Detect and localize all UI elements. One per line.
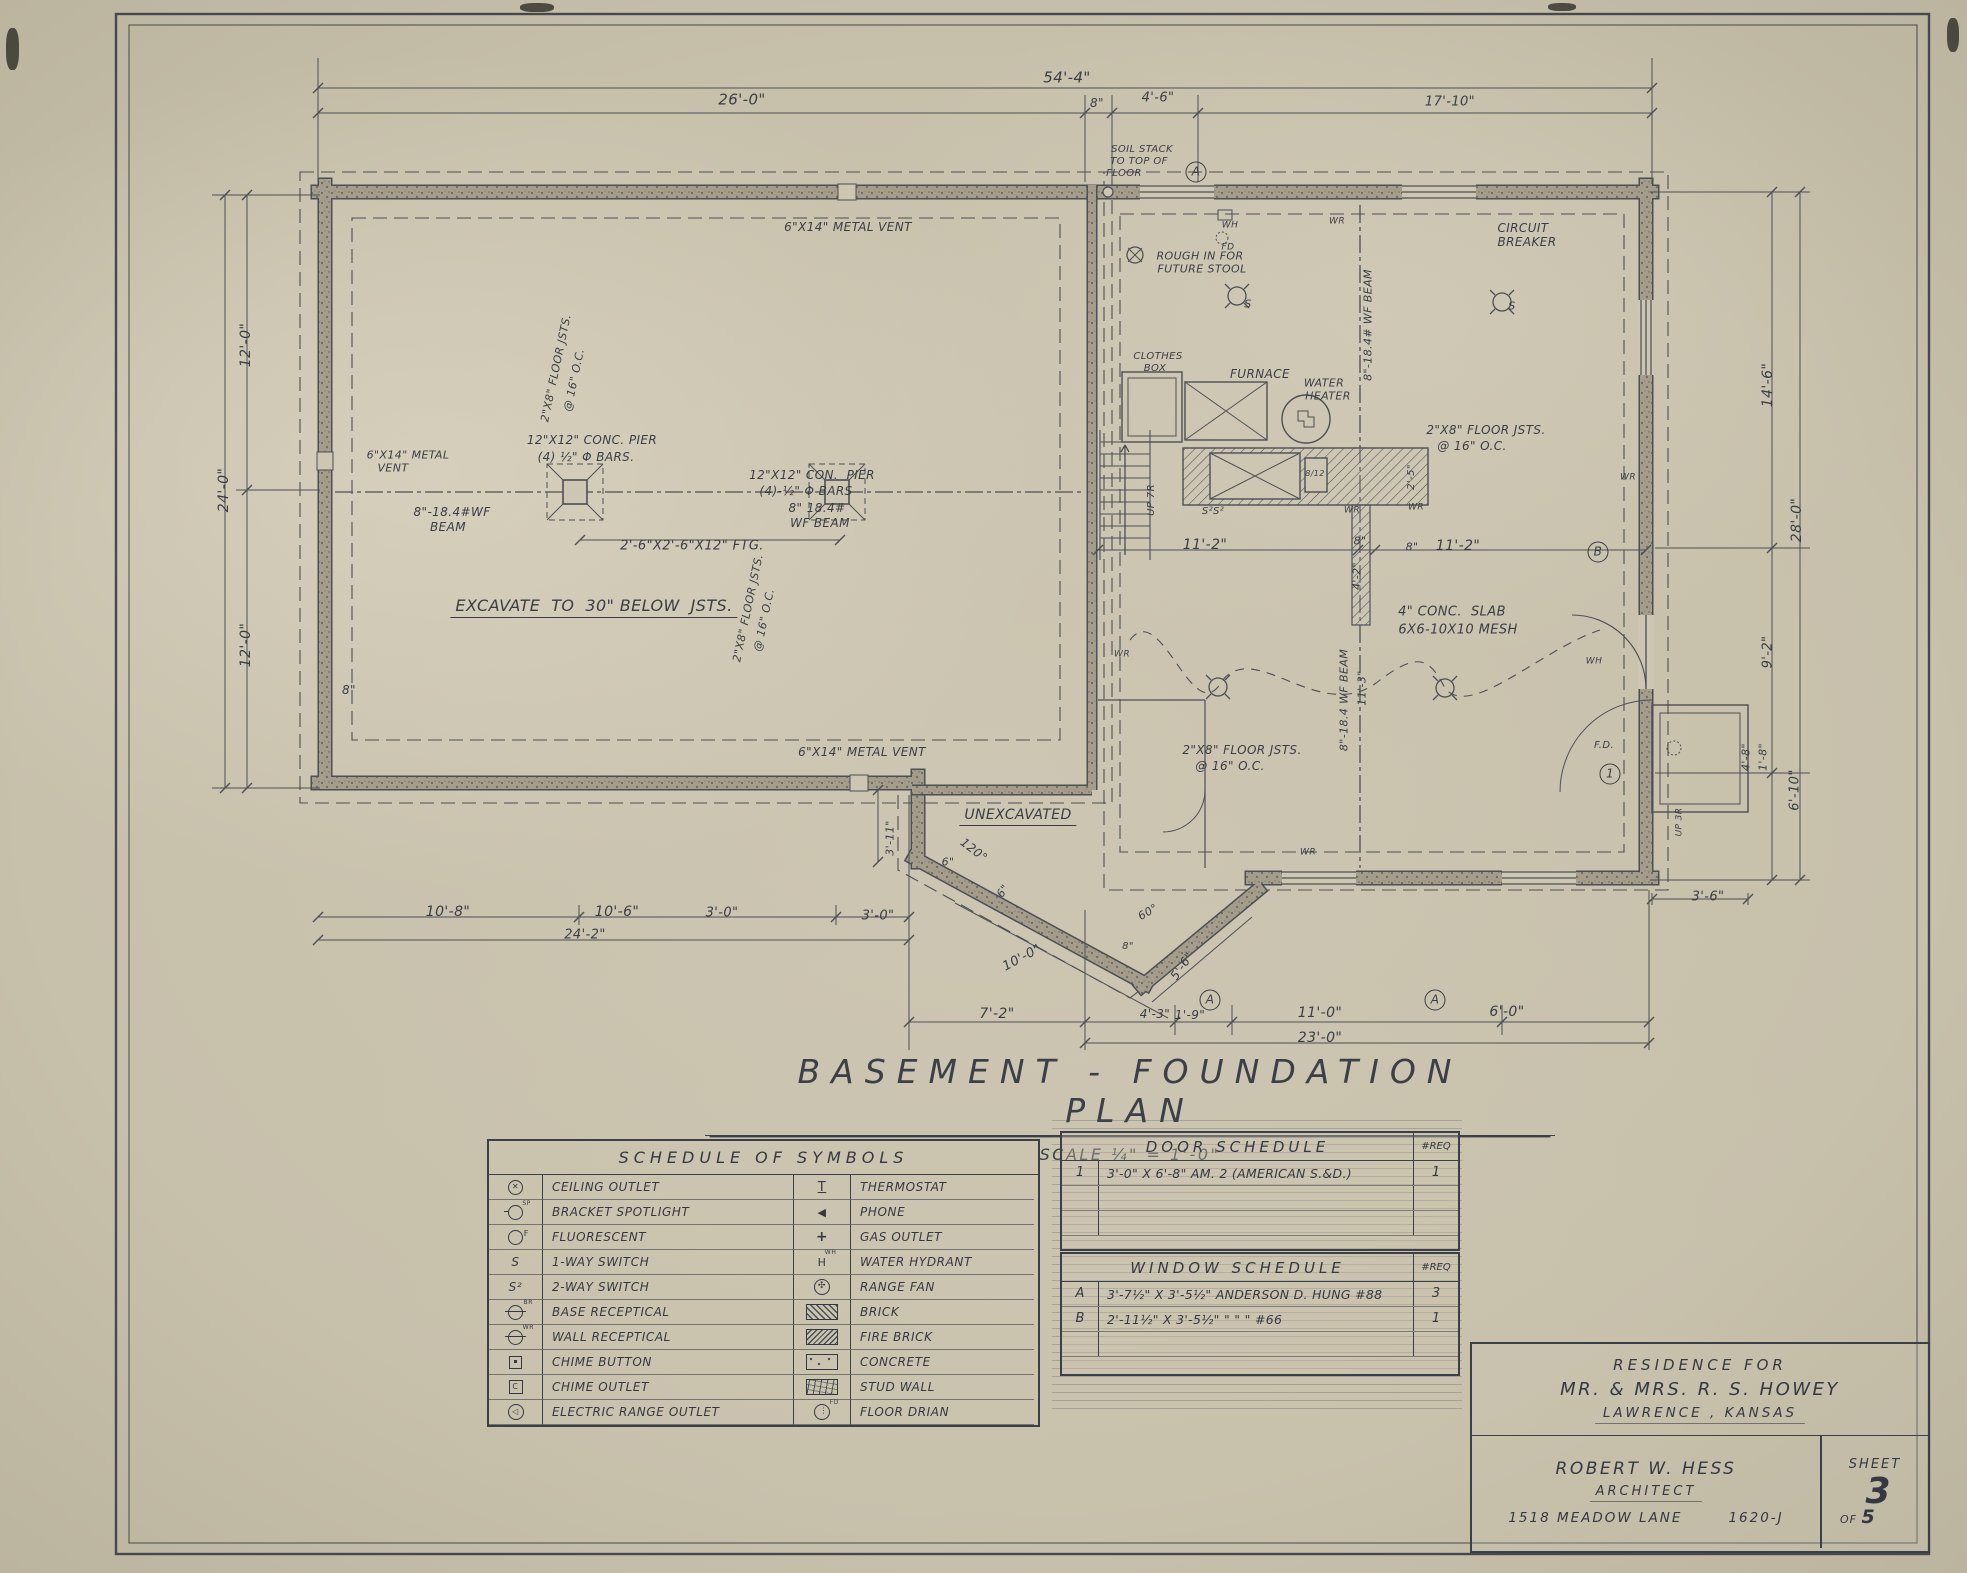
plan-annotation: 6" (942, 857, 955, 868)
schedule-cell-desc: 3'-0" X 6'-8" AM. 2 (AMERICAN S.&D.) (1099, 1166, 1413, 1181)
plan-annotation: 2'-6"X2'-6"X12" FTG. (620, 540, 764, 553)
base-receptacle-icon (489, 1300, 543, 1325)
window-schedule-title: WINDOW SCHEDULE (1062, 1259, 1413, 1277)
water-hydrant-icon (793, 1250, 851, 1275)
symbol-label: WALL RECEPTICAL (543, 1325, 793, 1350)
plan-annotation: WR (1408, 504, 1424, 513)
plan-annotation: 12"X12" CONC. PIER (527, 434, 657, 446)
chime-outlet-icon (489, 1375, 543, 1400)
plan-annotation: 24'-0" (217, 468, 231, 512)
gas-outlet-icon (793, 1225, 851, 1250)
concrete-icon (793, 1350, 851, 1375)
plan-annotation: A (1186, 162, 1207, 183)
thermostat-glyph (818, 1180, 827, 1195)
plan-annotation: 8" (1406, 542, 1419, 553)
title-block: RESIDENCE FOR MR. & MRS. R. S. HOWEY LAW… (1470, 1342, 1930, 1553)
schedule-empty-row (1062, 1186, 1458, 1211)
floor-drain-glyph (814, 1404, 830, 1420)
brick-icon (793, 1300, 851, 1325)
bracket-spotlight-glyph (508, 1205, 523, 1220)
schedule-row: A3'-7½" X 3'-5½" ANDERSON D. HUNG #883 (1062, 1282, 1458, 1307)
phone-icon (793, 1200, 851, 1225)
plan-annotation: 8" (342, 684, 356, 696)
ceiling-outlet-glyph (508, 1180, 523, 1195)
plan-annotation: 6"X14" METAL VENT (784, 221, 912, 233)
schedule-cell-mark: 1 (1062, 1161, 1099, 1185)
symbol-label: BASE RECEPTICAL (543, 1300, 793, 1325)
plan-annotation: @ 16" O.C. (1195, 760, 1264, 772)
plan-annotation: 11'-2" (1183, 538, 1227, 552)
plan-annotation: (4) ½" Φ BARS. (538, 451, 635, 463)
project-location: LAWRENCE , KANSAS (1595, 1405, 1805, 1424)
plan-annotation: 4'-8" (1741, 743, 1752, 771)
window-schedule-body: A3'-7½" X 3'-5½" ANDERSON D. HUNG #883B2… (1062, 1282, 1458, 1357)
plan-annotation: 4'-3" (1140, 1008, 1170, 1020)
plan-annotation: 11'-0" (1298, 1006, 1342, 1020)
plan-annotation: UP 3R (1676, 808, 1685, 837)
chime-button-icon (489, 1350, 543, 1375)
plan-annotation: BREAKER (1498, 236, 1557, 248)
door-schedule: DOOR SCHEDULE #REQ 13'-0" X 6'-8" AM. 2 … (1060, 1131, 1460, 1251)
schedule-row: 13'-0" X 6'-8" AM. 2 (AMERICAN S.&D.)1 (1062, 1161, 1458, 1186)
electric-range-outlet-icon (489, 1400, 543, 1425)
schedule-cell-desc: 3'-7½" X 3'-5½" ANDERSON D. HUNG #88 (1099, 1287, 1413, 1302)
two-way-switch-icon (489, 1275, 543, 1300)
one-way-switch-icon (489, 1250, 543, 1275)
plan-annotation: WH (1586, 658, 1602, 667)
wall-receptacle-icon (489, 1325, 543, 1350)
plan-annotation: 23'-0" (1298, 1031, 1342, 1045)
symbol-label: RANGE FAN (851, 1275, 1034, 1300)
plan-annotation: @ 16" O.C. (1437, 440, 1506, 452)
client-name: MR. & MRS. R. S. HOWEY (1560, 1379, 1840, 1400)
blueprint-sheet: 54'-4"26'-0"8"4'-6"17'-10"SOIL STACKTO T… (0, 0, 1967, 1573)
plan-annotation: 3'-0" (862, 910, 895, 923)
plan-annotation: 12"X12" CON. PIER (749, 469, 875, 481)
plan-annotation: 26'-0" (718, 93, 765, 108)
floor-drain-icon (793, 1400, 851, 1425)
plan-annotation: 11'-2" (1436, 539, 1480, 553)
sheet-total: 5 (1862, 1506, 1876, 1528)
symbol-label: FIRE BRICK (851, 1325, 1034, 1350)
plan-annotation: WR (1329, 218, 1345, 227)
plan-annotation: WF BEAM (790, 517, 850, 529)
plan-annotation: 3'-6" (1692, 891, 1725, 904)
plan-annotation: 6"X14" METAL VENT (798, 746, 926, 758)
plan-annotation: 8" (1090, 97, 1104, 109)
plan-annotation: 8/12 (1305, 470, 1325, 478)
sheet-number-box: SHEET 3 OF 5 (1820, 1436, 1928, 1548)
plan-annotation: 11'-3" (1357, 670, 1368, 705)
range-fan-icon (793, 1275, 851, 1300)
plan-annotation: 28'-0" (1790, 498, 1804, 542)
plan-annotation: 8"-18.4 WF BEAM (1339, 649, 1350, 751)
plan-annotation: 6"X14" METAL (367, 450, 450, 461)
symbol-label: ELECTRIC RANGE OUTLET (543, 1400, 793, 1425)
plan-annotation: 6X6-10X10 MESH (1398, 624, 1517, 637)
phone-glyph (817, 1205, 826, 1219)
plan-annotation: S²S² (1202, 507, 1224, 517)
symbol-label: CHIME OUTLET (543, 1375, 793, 1400)
symbol-label: BRACKET SPOTLIGHT (543, 1200, 793, 1225)
range-fan-glyph (814, 1279, 830, 1295)
plan-annotation: 8"-18.4# WF BEAM (1363, 269, 1374, 381)
schedule-cell-mark: B (1062, 1307, 1099, 1331)
symbol-schedule-title: SCHEDULE OF SYMBOLS (489, 1141, 1038, 1175)
symbol-label: CONCRETE (851, 1350, 1034, 1375)
plan-annotation: 10'-6" (595, 905, 639, 919)
plan-annotation: S (1508, 301, 1515, 312)
symbol-label: PHONE (851, 1200, 1034, 1225)
plan-annotation: 1'-9" (1175, 1009, 1205, 1021)
plan-annotation: 7'-2" (979, 1007, 1014, 1021)
plan-annotation: 54'-4" (1043, 71, 1090, 86)
door-schedule-body: 13'-0" X 6'-8" AM. 2 (AMERICAN S.&D.)1 (1062, 1161, 1458, 1236)
plan-annotation: FUTURE STOOL (1157, 264, 1246, 275)
schedule-cell-req: 1 (1413, 1161, 1458, 1185)
sheet-number: 3 (1865, 1474, 1890, 1510)
electric-range-outlet-glyph (508, 1404, 524, 1420)
stud-wall-icon (793, 1375, 851, 1400)
plan-annotation: WR (1344, 507, 1360, 516)
architect-address: 1518 MEADOW LANE (1508, 1510, 1682, 1526)
plan-annotation: WR (1620, 474, 1636, 483)
plan-annotation: BEAM (430, 521, 466, 533)
symbol-label: WATER HYDRANT (851, 1250, 1034, 1275)
plan-annotation: F.D. (1594, 741, 1614, 751)
schedule-cell-req: 1 (1413, 1307, 1458, 1331)
plan-annotation: WATER (1304, 378, 1344, 389)
plan-annotation: UP 7R (1147, 484, 1157, 516)
plan-annotation: SOIL STACK (1111, 145, 1173, 155)
sheet-label: SHEET (1849, 1457, 1901, 1472)
plan-annotation: B (1588, 542, 1609, 563)
two-way-switch-glyph (509, 1280, 523, 1294)
plan-annotation: WR (1114, 651, 1130, 660)
sheet-of-label: OF (1840, 1513, 1857, 1526)
symbol-label: GAS OUTLET (851, 1225, 1034, 1250)
symbol-label: BRICK (851, 1300, 1034, 1325)
symbol-label: CHIME BUTTON (543, 1350, 793, 1375)
plan-annotation: FURNACE (1230, 368, 1290, 380)
plan-annotation: VENT (377, 463, 408, 474)
plan-annotation: CIRCUIT (1497, 222, 1548, 234)
ceiling-outlet-icon (489, 1175, 543, 1200)
plan-annotation: WH (1222, 222, 1238, 231)
plan-annotation: 1 (1600, 764, 1621, 785)
schedule-cell-mark: A (1062, 1282, 1099, 1306)
plan-annotation: 8" (1354, 536, 1367, 547)
job-number: 1620-J (1728, 1510, 1783, 1526)
door-schedule-req-header: #REQ (1413, 1133, 1458, 1160)
plan-annotation: 2"X8" FLOOR JSTS. (1426, 424, 1545, 436)
plan-annotation: A (1425, 990, 1446, 1011)
plan-annotation: S (1244, 299, 1251, 310)
symbol-label: FLOOR DRIAN (851, 1400, 1034, 1425)
plan-annotation: BOX (1144, 364, 1167, 374)
wall-receptacle-glyph (508, 1330, 523, 1345)
plan-annotation: 24'-2" (564, 929, 605, 942)
plan-annotation: 17'-10" (1425, 96, 1475, 109)
symbol-label: CEILING OUTLET (543, 1175, 793, 1200)
plan-annotation: HEATER (1305, 391, 1351, 402)
schedule-cell-desc: 2'-11½" X 3'-5½" " " " #66 (1099, 1312, 1413, 1327)
fluorescent-icon (489, 1225, 543, 1250)
chime-outlet-glyph (509, 1380, 523, 1394)
bracket-spotlight-icon (489, 1200, 543, 1225)
schedule-cell-req: 3 (1413, 1282, 1458, 1306)
plan-annotation: UNEXCAVATED (959, 808, 1076, 826)
plan-annotation: TO TOP OF (1110, 157, 1168, 167)
plan-annotation: 9'-2" (1762, 636, 1775, 669)
symbol-label: STUD WALL (851, 1375, 1034, 1400)
architect-role: ARCHITECT (1590, 1484, 1703, 1502)
plan-annotation: 3'-11" (885, 820, 896, 855)
stud-wall-glyph (806, 1379, 838, 1395)
thermostat-icon (793, 1175, 851, 1200)
plan-annotation: FLOOR (1106, 169, 1142, 179)
plan-annotation: 4'-6" (1142, 92, 1175, 105)
symbol-label: THERMOSTAT (851, 1175, 1034, 1200)
plan-annotation: 8" 18.4# (789, 502, 846, 514)
plan-annotation: 8"-18.4#WF (413, 506, 490, 518)
schedule-empty-row (1062, 1211, 1458, 1236)
fire-brick-glyph (806, 1329, 838, 1345)
plan-annotation: 6'-0" (1489, 1005, 1524, 1019)
door-schedule-title: DOOR SCHEDULE (1062, 1138, 1413, 1156)
plan-annotation: CLOTHES (1133, 352, 1182, 362)
plan-annotation: 3'-0" (706, 907, 739, 920)
window-schedule: WINDOW SCHEDULE #REQ A3'-7½" X 3'-5½" AN… (1060, 1252, 1460, 1376)
symbol-label: FLUORESCENT (543, 1225, 793, 1250)
plan-annotation: 10'-8" (426, 905, 470, 919)
plan-annotation: 2'-5" (1407, 464, 1417, 490)
project-line1: RESIDENCE FOR (1613, 1356, 1787, 1374)
brick-glyph (806, 1304, 838, 1320)
plan-annotation: 6'-10" (1789, 769, 1802, 810)
plan-annotation: 2"X8" FLOOR JSTS. (1182, 744, 1301, 756)
fire-brick-icon (793, 1325, 851, 1350)
plan-annotation: 14'-6" (1761, 363, 1775, 407)
plan-annotation: (4)-½" Φ BARS (759, 485, 852, 497)
architect-name: ROBERT W. HESS (1556, 1459, 1737, 1479)
symbol-label: 1-WAY SWITCH (543, 1250, 793, 1275)
symbol-schedule: SCHEDULE OF SYMBOLS CEILING OUTLETTHERMO… (487, 1139, 1040, 1427)
gas-outlet-glyph (816, 1229, 828, 1245)
base-receptacle-glyph (508, 1305, 523, 1320)
plan-annotation: ROUGH IN FOR (1156, 251, 1243, 262)
chime-button-glyph (509, 1356, 522, 1369)
symbol-label: 2-WAY SWITCH (543, 1275, 793, 1300)
plan-annotation: 12'-0" (239, 323, 253, 367)
plan-annotation: 8" (1122, 942, 1134, 952)
plan-annotation: 1'-8" (1758, 743, 1769, 771)
water-hydrant-glyph (818, 1255, 827, 1269)
one-way-switch-glyph (511, 1255, 519, 1269)
plan-annotation: 12'-0" (239, 623, 253, 667)
plan-annotation: 4'-2" (1352, 562, 1363, 590)
schedule-row: B2'-11½" X 3'-5½" " " " #661 (1062, 1307, 1458, 1332)
plan-annotation: EXCAVATE TO 30" BELOW JSTS. (450, 598, 737, 618)
plan-annotation: 4" CONC. SLAB (1398, 606, 1506, 619)
window-schedule-req-header: #REQ (1413, 1254, 1458, 1281)
symbol-schedule-body: CEILING OUTLETTHERMOSTATBRACKET SPOTLIGH… (489, 1175, 1038, 1425)
plan-annotation: WR (1300, 849, 1316, 858)
fluorescent-glyph (508, 1230, 523, 1245)
concrete-glyph (806, 1354, 838, 1370)
plan-annotation: A (1200, 990, 1221, 1011)
schedule-empty-row (1062, 1332, 1458, 1357)
